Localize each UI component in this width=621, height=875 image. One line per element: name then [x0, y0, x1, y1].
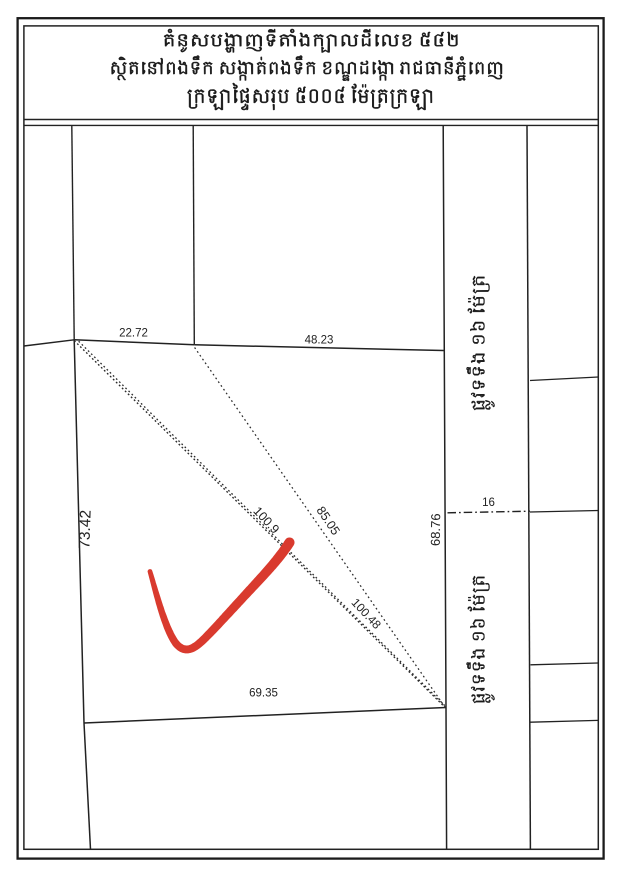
svg-text:22.72: 22.72	[119, 328, 148, 340]
svg-text:48.23: 48.23	[305, 335, 334, 347]
svg-text:68.76: 68.76	[428, 513, 444, 546]
svg-text:73.42: 73.42	[76, 510, 94, 549]
svg-text:69.35: 69.35	[249, 688, 278, 700]
svg-text:16: 16	[482, 497, 495, 509]
